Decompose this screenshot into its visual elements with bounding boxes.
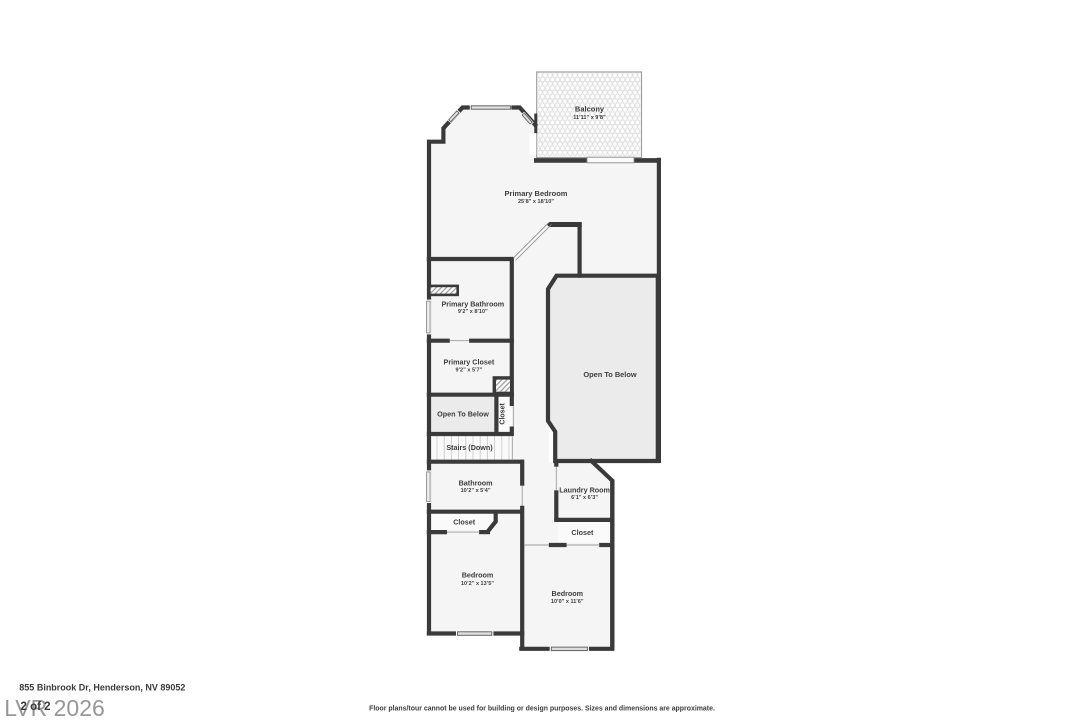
svg-text:Primary Bathroom: Primary Bathroom: [441, 300, 504, 309]
svg-text:2 of 2: 2 of 2: [21, 701, 51, 713]
svg-text:10’2” x 13’5”: 10’2” x 13’5”: [461, 581, 494, 587]
svg-text:Bedroom: Bedroom: [462, 571, 494, 580]
svg-text:9’2” x 8’10”: 9’2” x 8’10”: [458, 309, 488, 315]
svg-text:6’1” x 6’3”: 6’1” x 6’3”: [571, 495, 598, 501]
svg-text:Closet: Closet: [571, 528, 594, 537]
svg-text:Open To Below: Open To Below: [437, 409, 489, 418]
svg-text:855 Binbrook Dr, Henderson, NV: 855 Binbrook Dr, Henderson, NV 89052: [19, 683, 185, 693]
svg-text:Stairs (Down): Stairs (Down): [446, 443, 493, 452]
svg-text:9’2” x 5’7”: 9’2” x 5’7”: [455, 367, 482, 373]
svg-text:Balcony: Balcony: [575, 105, 605, 114]
svg-text:Closet: Closet: [500, 403, 507, 425]
svg-text:Primary Bedroom: Primary Bedroom: [505, 189, 568, 198]
svg-text:Floor plans/tour cannot be use: Floor plans/tour cannot be used for buil…: [369, 706, 715, 713]
svg-text:Laundry Room: Laundry Room: [559, 486, 610, 495]
svg-text:LVR 2026: LVR 2026: [4, 695, 105, 721]
svg-text:Open To Below: Open To Below: [583, 370, 636, 379]
svg-text:25’8” x 18’10”: 25’8” x 18’10”: [518, 199, 554, 205]
svg-text:11’11” x 9’8”: 11’11” x 9’8”: [573, 115, 606, 121]
svg-text:10’2” x 5’4”: 10’2” x 5’4”: [461, 488, 491, 494]
svg-text:Bedroom: Bedroom: [552, 589, 584, 598]
svg-text:10’0” x 11’6”: 10’0” x 11’6”: [551, 599, 584, 605]
svg-text:Closet: Closet: [453, 517, 476, 526]
svg-text:Bathroom: Bathroom: [459, 478, 493, 487]
svg-text:Primary Closet: Primary Closet: [444, 358, 495, 367]
